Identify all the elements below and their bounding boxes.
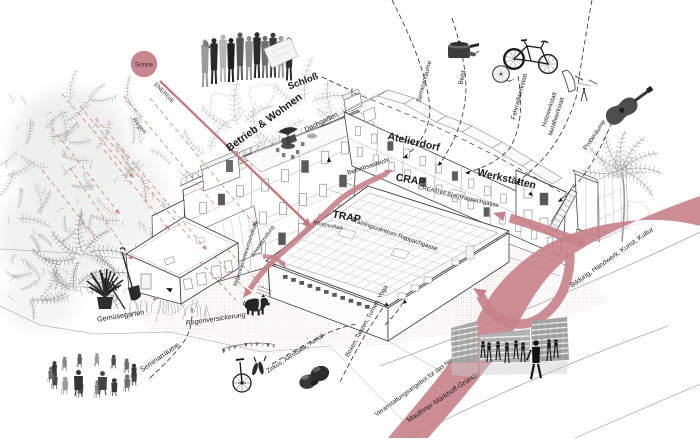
svg-text:Sonne: Sonne [135, 62, 153, 69]
